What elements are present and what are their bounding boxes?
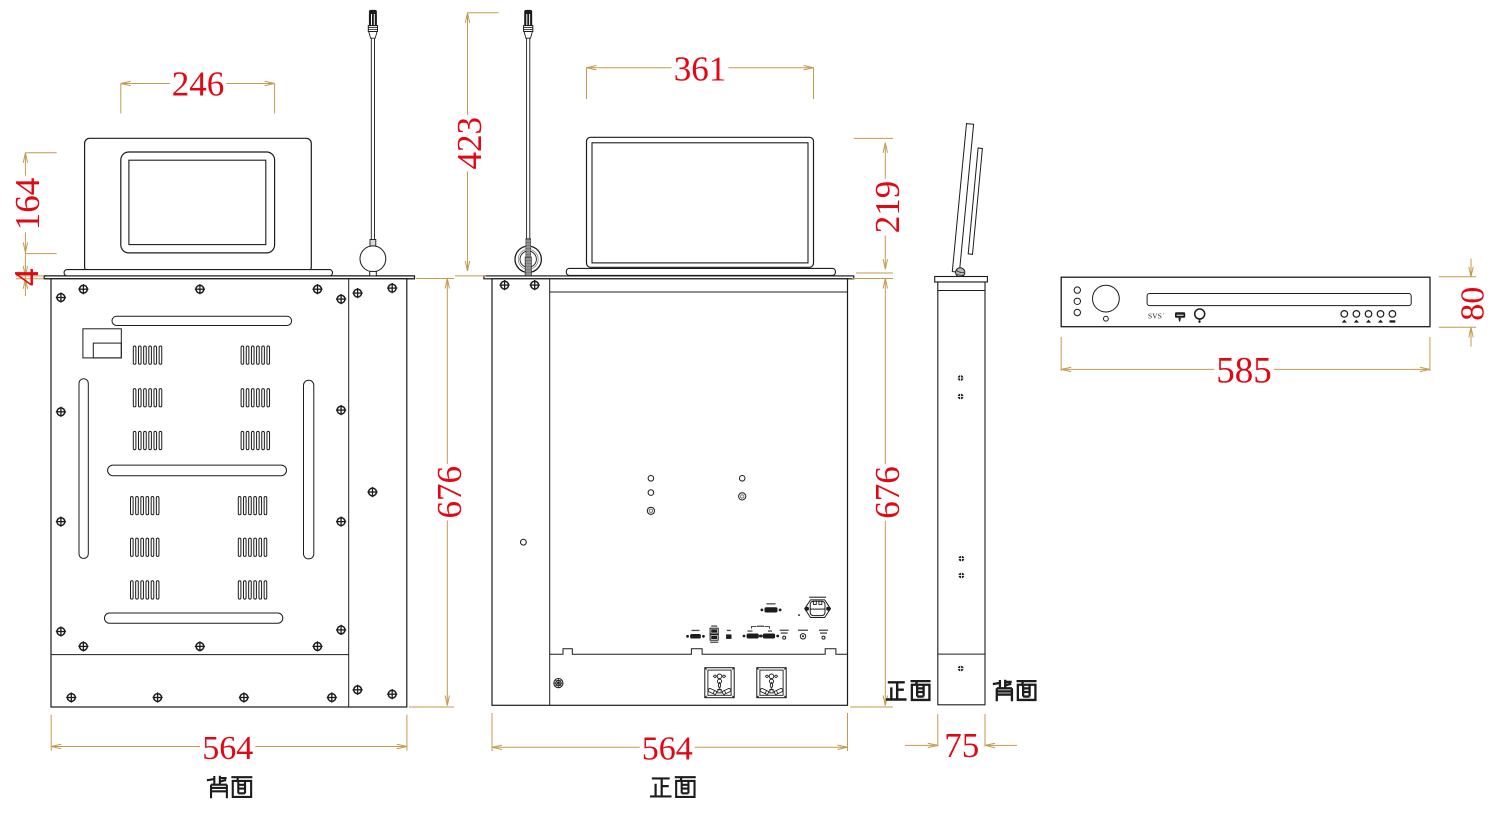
svg-text:219: 219 (868, 181, 907, 234)
svg-text:246: 246 (172, 65, 225, 104)
svg-text:SVSˈ: SVSˈ (1148, 311, 1165, 320)
svg-text:4: 4 (7, 269, 46, 287)
svg-text:585: 585 (1216, 351, 1272, 392)
svg-text:676: 676 (430, 466, 469, 519)
svg-text:423: 423 (450, 117, 489, 170)
svg-text:564: 564 (202, 730, 253, 767)
svg-text:564: 564 (642, 730, 693, 767)
svg-text:80: 80 (1455, 287, 1492, 321)
svg-text:164: 164 (8, 178, 47, 231)
svg-text:75: 75 (944, 726, 979, 765)
svg-text:361: 361 (674, 49, 727, 88)
svg-text:676: 676 (868, 466, 907, 519)
